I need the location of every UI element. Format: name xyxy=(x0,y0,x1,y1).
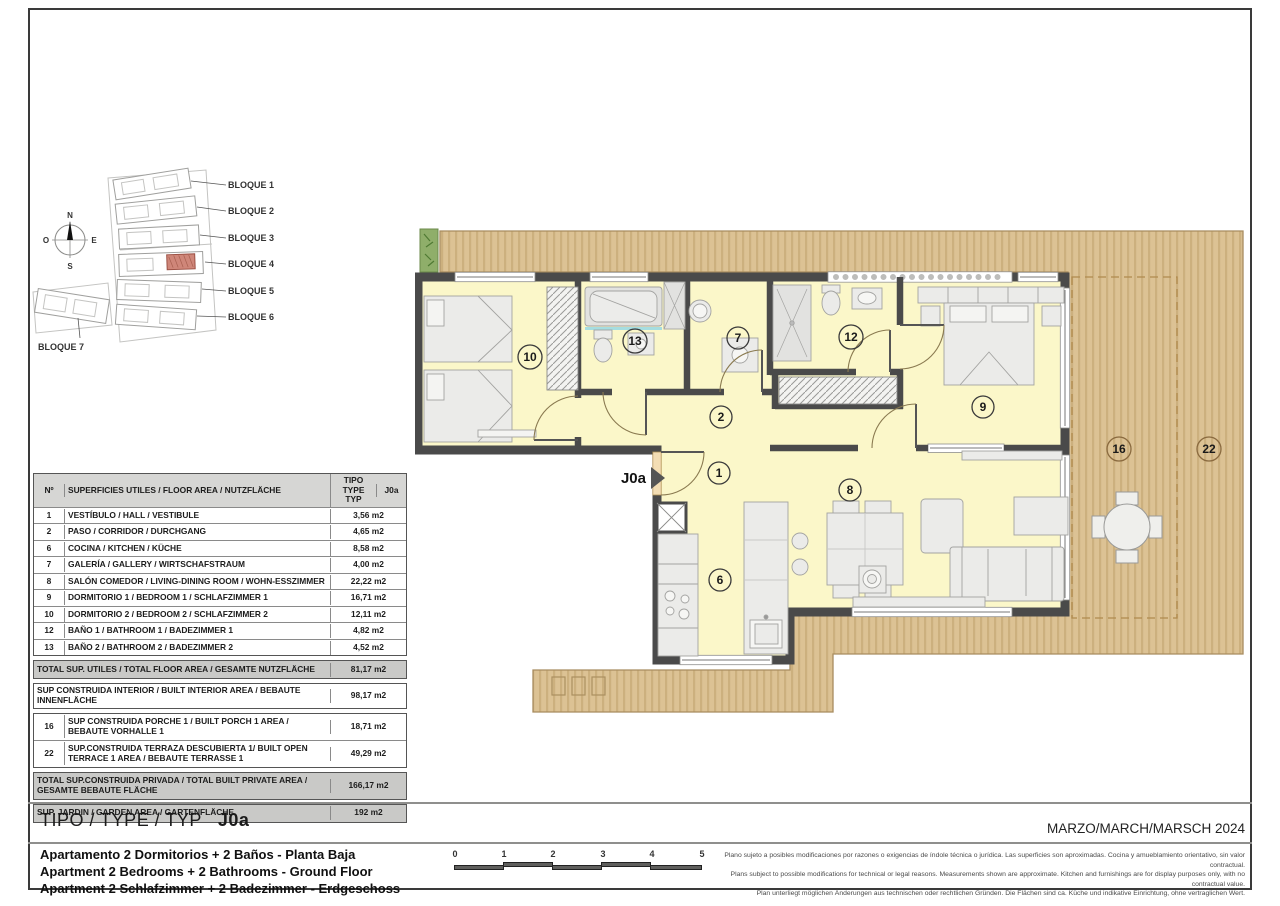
svg-text:1: 1 xyxy=(716,466,723,480)
header-desc: SUPERFICIES UTILES / FLOOR AREA / NUTZFL… xyxy=(64,484,330,498)
planter xyxy=(420,229,438,272)
bathtub xyxy=(585,287,662,330)
apartment-descriptions: Apartamento 2 Dormitorios + 2 Baños - Pl… xyxy=(40,846,400,897)
scale-tick-label: 3 xyxy=(600,849,605,859)
svg-text:10: 10 xyxy=(523,350,537,364)
site-block-5 xyxy=(117,280,202,303)
bar-stool xyxy=(792,533,808,549)
site-block-1 xyxy=(113,168,191,200)
total-private-row: TOTAL SUP.CONSTRUIDA PRIVADA / TOTAL BUI… xyxy=(33,772,407,800)
total-utiles-row: TOTAL SUP. UTILES / TOTAL FLOOR AREA / G… xyxy=(33,660,407,679)
scale-tick-label: 2 xyxy=(550,849,555,859)
site-block-6 xyxy=(115,304,196,330)
terrace-row: 22SUP.CONSTRUIDA TERRAZA DESCUBIERTA 1/ … xyxy=(34,740,406,767)
svg-text:2: 2 xyxy=(718,410,725,424)
sofa xyxy=(950,547,1064,601)
area-table-main: Nº SUPERFICIES UTILES / FLOOR AREA / NUT… xyxy=(33,473,407,656)
description-de: Apartment 2 Schlafzimmer + 2 Badezimmer … xyxy=(40,880,400,897)
scale-bar: 0 1 2 3 4 5 xyxy=(454,849,704,877)
disclaimer-en: Plans subject to possible modifications … xyxy=(700,870,1245,889)
titleblock-separator-mid xyxy=(28,842,1252,844)
side-table xyxy=(859,566,886,593)
bar-stool xyxy=(792,559,808,575)
armchair xyxy=(921,499,963,553)
disclaimer-de: Plan unterliegt möglichen Änderungen aus… xyxy=(700,889,1245,899)
wardrobe-bedroom2 xyxy=(547,287,578,390)
site-block-2 xyxy=(115,196,197,224)
header-num: Nº xyxy=(34,484,64,498)
site-label-bloque-3: BLOQUE 3 xyxy=(228,233,274,243)
svg-text:9: 9 xyxy=(980,400,987,414)
kitchen-counter xyxy=(658,534,698,656)
site-location-plan: BLOQUE 1 BLOQUE 2 BLOQUE 3 BLOQUE 4 BLOQ… xyxy=(28,160,323,375)
table-row: 7GALERÍA / GALLERY / WIRTSCHAFSTRAUM4,00… xyxy=(34,556,406,573)
ventilation-shaft xyxy=(657,503,686,532)
svg-text:7: 7 xyxy=(735,331,742,345)
toilet-bath1 xyxy=(822,285,840,315)
table-row: 8SALÓN COMEDOR / LIVING-DINING ROOM / WO… xyxy=(34,573,406,590)
table-row: 12BAÑO 1 / BATHROOM 1 / BADEZIMMER 14,82… xyxy=(34,622,406,639)
laundry-sink xyxy=(689,300,711,322)
type-code: J0a xyxy=(218,810,250,830)
svg-text:13: 13 xyxy=(628,334,642,348)
site-label-bloque-5: BLOQUE 5 xyxy=(228,286,274,296)
scale-tick-label: 4 xyxy=(649,849,654,859)
exterior-areas: 16SUP CONSTRUIDA PORCHE 1 / BUILT PORCH … xyxy=(33,713,407,768)
site-label-bloque-4: BLOQUE 4 xyxy=(228,259,274,269)
site-block-3 xyxy=(119,225,200,249)
built-interior-row: SUP CONSTRUIDA INTERIOR / BUILT INTERIOR… xyxy=(33,683,407,708)
description-en: Apartment 2 Bedrooms + 2 Bathrooms - Gro… xyxy=(40,863,400,880)
svg-text:6: 6 xyxy=(717,573,724,587)
table-row: 13BAÑO 2 / BATHROOM 2 / BADEZIMMER 24,52… xyxy=(34,639,406,656)
floor-plan: 1 2 6 7 8 9 10 12 13 16 22 J0a xyxy=(415,225,1250,755)
table-header: Nº SUPERFICIES UTILES / FLOOR AREA / NUT… xyxy=(34,474,406,507)
tv-bench xyxy=(853,597,985,607)
table-row: 10DORMITORIO 2 / BEDROOM 2 / SCHLAFZIMME… xyxy=(34,606,406,623)
kitchen-island xyxy=(744,502,788,654)
scale-tick-label: 1 xyxy=(501,849,506,859)
area-table: Nº SUPERFICIES UTILES / FLOOR AREA / NUT… xyxy=(33,473,407,827)
legal-disclaimer: Plano sujeto a posibles modificaciones p… xyxy=(700,851,1245,899)
coffee-table xyxy=(1014,497,1068,535)
table-row: 2PASO / CORRIDOR / DURCHGANG4,65 m2 xyxy=(34,523,406,540)
compass-e: E xyxy=(91,236,97,245)
header-model: J0a xyxy=(376,484,406,498)
sheet-title: TIPO / TYPE / TYPJ0a xyxy=(40,810,249,831)
svg-text:12: 12 xyxy=(844,330,858,344)
sideboard xyxy=(962,451,1062,460)
svg-text:16: 16 xyxy=(1112,442,1126,456)
site-label-bloque-6: BLOQUE 6 xyxy=(228,312,274,322)
compass-n: N xyxy=(67,211,73,220)
compass-icon: N E S O xyxy=(43,211,97,271)
shower-column xyxy=(664,282,685,329)
description-es: Apartamento 2 Dormitorios + 2 Baños - Pl… xyxy=(40,846,400,863)
header-type: TIPO TYPE TYP xyxy=(330,474,376,507)
toilet-bath2 xyxy=(594,330,612,362)
plan-date: MARZO/MARCH/MARSCH 2024 xyxy=(1047,821,1245,836)
table-row: 1VESTÍBULO / HALL / VESTIBULE3,56 m2 xyxy=(34,507,406,524)
scale-tick-label: 0 xyxy=(452,849,457,859)
scale-bar-rail xyxy=(454,862,702,870)
wardrobe-bedroom1 xyxy=(779,377,897,404)
site-highlighted-unit xyxy=(167,254,196,270)
site-label-bloque-2: BLOQUE 2 xyxy=(228,206,274,216)
compass-s: S xyxy=(67,262,73,271)
compass-w: O xyxy=(43,236,49,245)
site-label-bloque-7: BLOQUE 7 xyxy=(38,342,84,352)
site-block-7 xyxy=(35,289,110,324)
shower-bath1 xyxy=(773,285,811,361)
site-label-bloque-1: BLOQUE 1 xyxy=(228,180,274,190)
table-row: 6COCINA / KITCHEN / KÜCHE8,58 m2 xyxy=(34,540,406,557)
washbasin-bath1 xyxy=(852,288,882,309)
lattice-grille xyxy=(828,272,1012,282)
porch-row: 16SUP CONSTRUIDA PORCHE 1 / BUILT PORCH … xyxy=(34,714,406,740)
entrance-label: J0a xyxy=(621,470,647,487)
type-label: TIPO / TYPE / TYP xyxy=(40,810,202,830)
disclaimer-es: Plano sujeto a posibles modificaciones p… xyxy=(700,851,1245,870)
table-row: 9DORMITORIO 1 / BEDROOM 1 / SCHLAFZIMMER… xyxy=(34,589,406,606)
svg-text:8: 8 xyxy=(847,483,854,497)
svg-text:22: 22 xyxy=(1202,442,1216,456)
